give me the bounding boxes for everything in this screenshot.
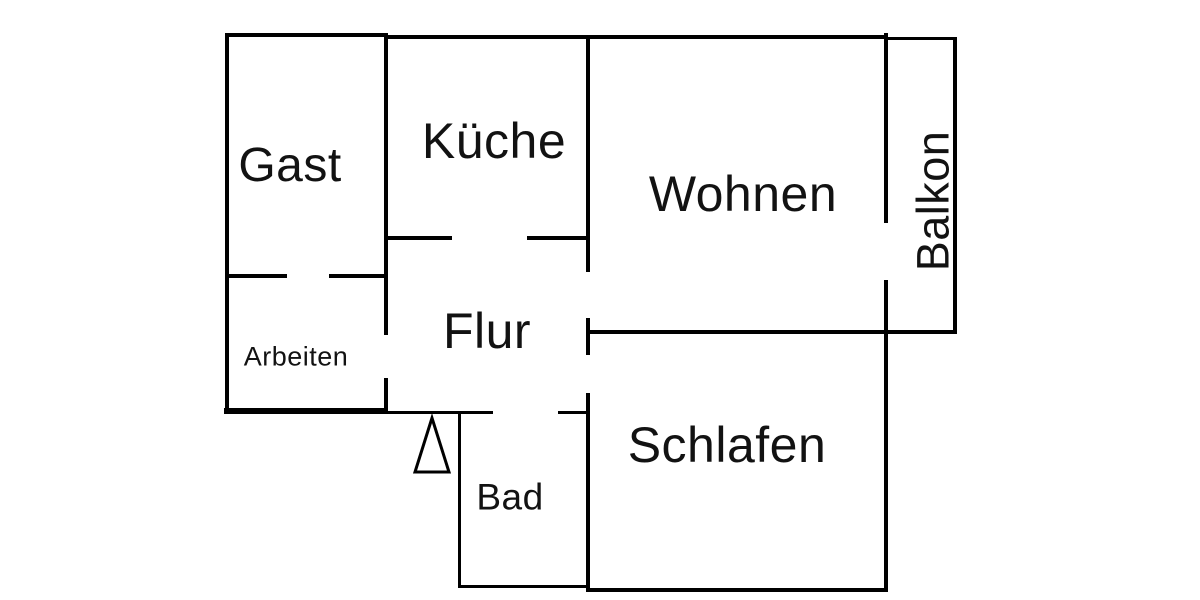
wall-flur-bad [586, 393, 590, 592]
room-label-flur: Flur [443, 306, 531, 356]
wall-bad-left [458, 411, 461, 588]
wall-arbeiten-flur [384, 378, 388, 414]
wall-gast-arbeiten-left [225, 274, 287, 278]
room-label-wohnen: Wohnen [649, 169, 837, 219]
wall-wohnen-balkon [884, 33, 888, 223]
wall-kueche-flur-right [527, 236, 590, 240]
wall-flur-schlafen [586, 318, 590, 355]
wall-bad-bottom [458, 585, 590, 588]
room-label-gast: Gast [238, 142, 341, 190]
entrance-arrow-icon [408, 413, 456, 477]
room-label-kueche: Küche [422, 116, 566, 166]
room-label-arbeiten: Arbeiten [244, 344, 349, 371]
wall-schlafen-right [884, 280, 888, 592]
wall-top-gast [225, 33, 388, 37]
wall-arbeiten-bottom [224, 408, 388, 414]
wall-gast-kueche [384, 33, 388, 335]
wall-gast-arbeiten-right [329, 274, 388, 278]
wall-wohnen-schlafen [586, 330, 957, 334]
room-label-bad: Bad [476, 479, 543, 516]
floorplan: Gast Küche Wohnen Balkon Arbeiten Flur B… [0, 0, 1200, 600]
wall-kueche-wohnen [586, 35, 590, 272]
wall-top-main [384, 35, 888, 39]
wall-balkon-top [886, 37, 957, 40]
wall-outer-left [225, 33, 229, 414]
wall-schlafen-bottom [586, 588, 888, 592]
wall-kueche-flur-left [384, 236, 452, 240]
room-label-schlafen: Schlafen [628, 420, 827, 470]
room-label-balkon: Balkon [911, 131, 956, 272]
